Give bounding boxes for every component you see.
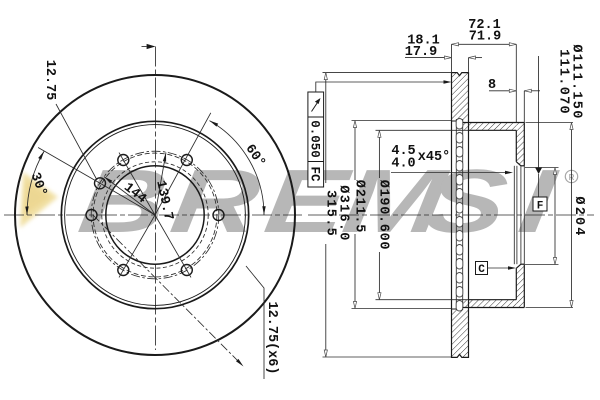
svg-text:12.75(x6): 12.75(x6): [264, 302, 279, 375]
svg-text:12.75: 12.75: [42, 60, 57, 101]
svg-text:Ø190.600: Ø190.600: [376, 180, 391, 250]
svg-text:4.0: 4.0: [391, 157, 415, 172]
svg-text:Ø204: Ø204: [571, 196, 586, 237]
svg-text:F: F: [537, 201, 544, 213]
svg-text:FC: FC: [307, 166, 321, 182]
svg-text:C: C: [478, 264, 485, 276]
svg-text:0.050: 0.050: [307, 120, 321, 158]
svg-text:315.5: 315.5: [323, 190, 338, 237]
svg-text:x45°: x45°: [418, 150, 450, 165]
svg-text:111.070: 111.070: [556, 49, 571, 115]
svg-text:71.9: 71.9: [469, 30, 501, 45]
svg-text:Ø211.5: Ø211.5: [352, 180, 367, 233]
